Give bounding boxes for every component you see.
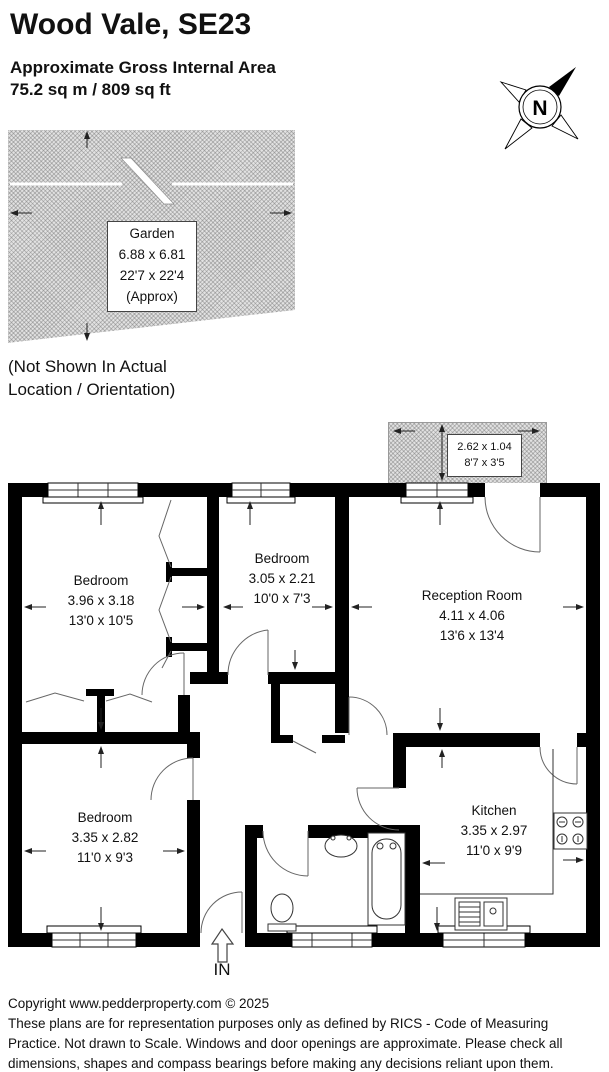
room-label-bedroom-2: Bedroom 3.05 x 2.21 10'0 x 7'3	[202, 549, 362, 609]
footer-disclaimer-line2: Practice. Not drawn to Scale. Windows an…	[8, 1034, 563, 1054]
floorplan-page: Wood Vale, SE23 Approximate Gross Intern…	[0, 0, 609, 1072]
room-label-reception: Reception Room 4.11 x 4.06 13'6 x 13'4	[382, 586, 562, 646]
footer-disclaimer-line1: These plans are for representation purpo…	[8, 1014, 548, 1034]
compass-north-label: N	[532, 97, 547, 120]
footer-copyright: Copyright www.pedderproperty.com © 2025	[8, 994, 269, 1014]
basin-icon	[325, 835, 357, 857]
garden-note: (Not Shown In Actual Location / Orientat…	[8, 355, 175, 401]
room-label-bedroom-1: Bedroom 3.96 x 3.18 13'0 x 10'5	[21, 571, 181, 631]
entrance-label: IN	[204, 960, 240, 980]
gross-area-label: Approximate Gross Internal Area	[10, 58, 276, 78]
gross-area-value: 75.2 sq m / 809 sq ft	[10, 80, 171, 100]
sink-icon	[455, 898, 507, 930]
room-label-bedroom-3: Bedroom 3.35 x 2.82 11'0 x 9'3	[25, 808, 185, 868]
room-label-kitchen: Kitchen 3.35 x 2.97 11'0 x 9'9	[414, 801, 574, 861]
garden-label-box: Garden 6.88 x 6.81 22'7 x 22'4 (Approx)	[107, 221, 197, 312]
bathtub-icon	[368, 833, 405, 925]
garden-size-metric: 6.88 x 6.81	[108, 244, 196, 265]
toilet-icon	[268, 894, 296, 931]
garden-size-imperial: 22'7 x 22'4	[108, 265, 196, 286]
compass-icon: N	[501, 67, 578, 149]
garden-approx: (Approx)	[108, 286, 196, 307]
balcony-label-box: 2.62 x 1.04 8'7 x 3'5	[447, 434, 522, 477]
garden-name: Garden	[108, 223, 196, 244]
page-title: Wood Vale, SE23	[10, 8, 251, 42]
footer-disclaimer-line3: dimensions, shapes and compass bearings …	[8, 1054, 554, 1072]
balcony-size-imperial: 8'7 x 3'5	[448, 455, 521, 471]
entrance-arrow-icon	[212, 929, 233, 962]
balcony-size-metric: 2.62 x 1.04	[448, 439, 521, 455]
